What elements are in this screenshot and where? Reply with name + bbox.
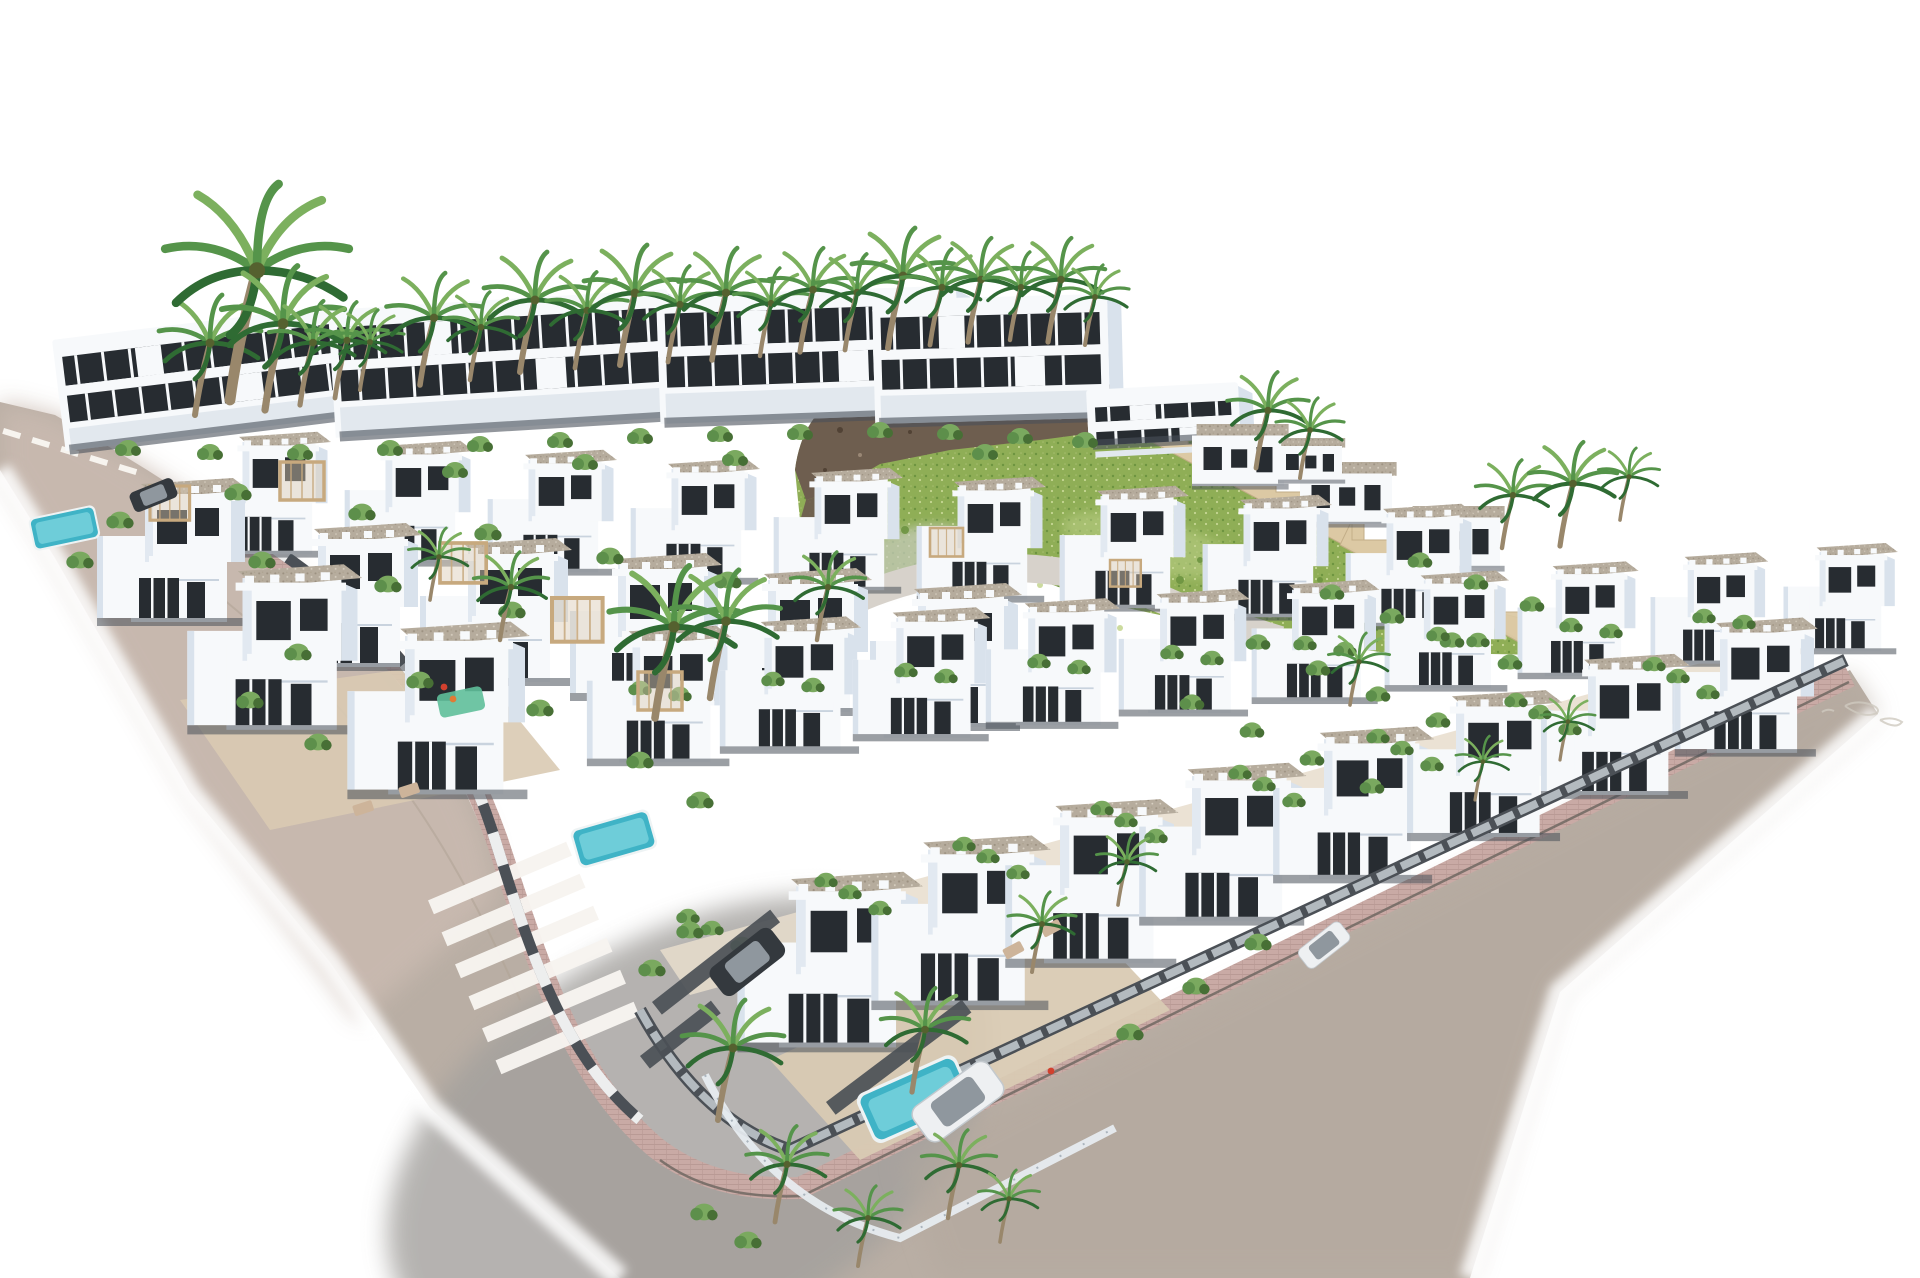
rock-dot [908, 430, 912, 434]
garden-bush [1300, 750, 1325, 765]
rock-dot [858, 453, 862, 457]
tiny-figure [1048, 1068, 1055, 1075]
apartment-building [328, 288, 689, 441]
wall-panel [838, 350, 869, 382]
wall-panel [535, 357, 567, 389]
garden-bush [1426, 712, 1451, 727]
vegetation-dot [901, 526, 909, 534]
frontage-bush [627, 428, 653, 444]
pergola [1110, 560, 1141, 587]
stepped-house [1278, 438, 1345, 484]
strip-bush [814, 873, 837, 887]
frontage-bush [722, 450, 748, 466]
apartment-building [872, 293, 1124, 427]
garden-bush [1520, 596, 1545, 611]
strip-bush [952, 837, 975, 851]
rock-dot [837, 427, 843, 433]
frontage-bush [547, 432, 573, 448]
wall-panel [135, 345, 164, 377]
rock-dot [823, 468, 827, 472]
tiny-figure [441, 684, 448, 691]
swimming-pool [569, 808, 659, 870]
stepped-house [1192, 424, 1289, 490]
vegetation-dot [1197, 557, 1203, 563]
wall-panel [1015, 356, 1046, 387]
frontage-bush [707, 426, 733, 442]
pergola [930, 528, 963, 557]
pergola [552, 598, 603, 642]
vegetation-dot [1117, 625, 1123, 631]
cluster-bush [686, 792, 713, 809]
frontage-bush [197, 444, 223, 460]
frontage-bush [467, 436, 493, 452]
cluster-bush [526, 700, 553, 717]
vegetation-dot [1176, 576, 1184, 584]
vegetation-dot [1317, 577, 1323, 583]
window-strip-lower [882, 354, 1102, 389]
tiny-figure [450, 696, 457, 703]
cluster-bush [596, 548, 623, 565]
pergola [280, 462, 324, 500]
strip-bush [676, 909, 699, 923]
frontage-bush [377, 440, 403, 456]
garden-bush [1240, 722, 1265, 737]
back-row-villa [853, 607, 991, 741]
window-strip-upper [880, 312, 1100, 350]
aerial-development-render [0, 0, 1920, 1278]
wall-panel [938, 316, 965, 349]
palm-tree [1529, 442, 1617, 546]
palm-tree [1598, 448, 1659, 520]
wall-panel [1129, 404, 1156, 420]
